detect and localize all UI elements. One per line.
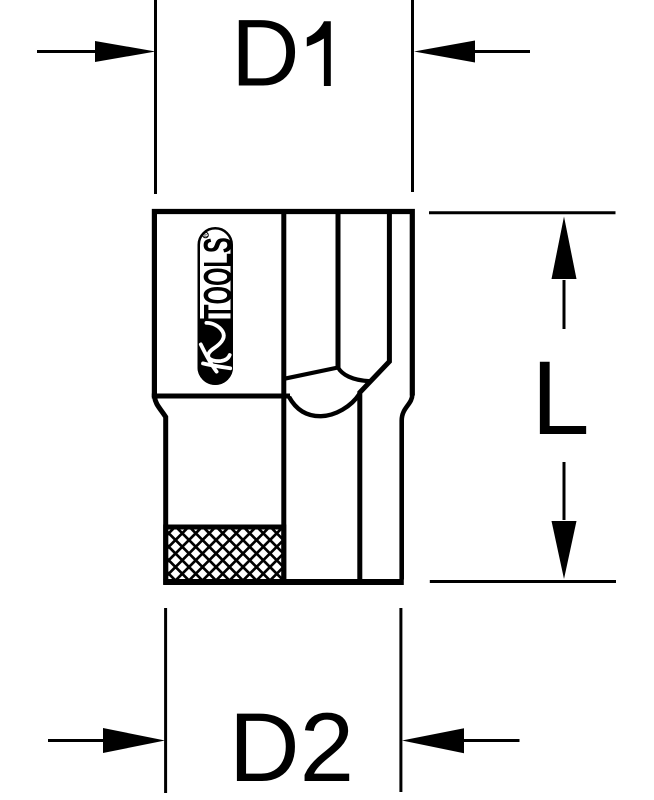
svg-text:D2: D2 — [229, 692, 354, 800]
svg-text:R: R — [204, 233, 210, 237]
svg-text:L: L — [531, 340, 589, 457]
svg-text:D: D — [231, 1, 300, 107]
